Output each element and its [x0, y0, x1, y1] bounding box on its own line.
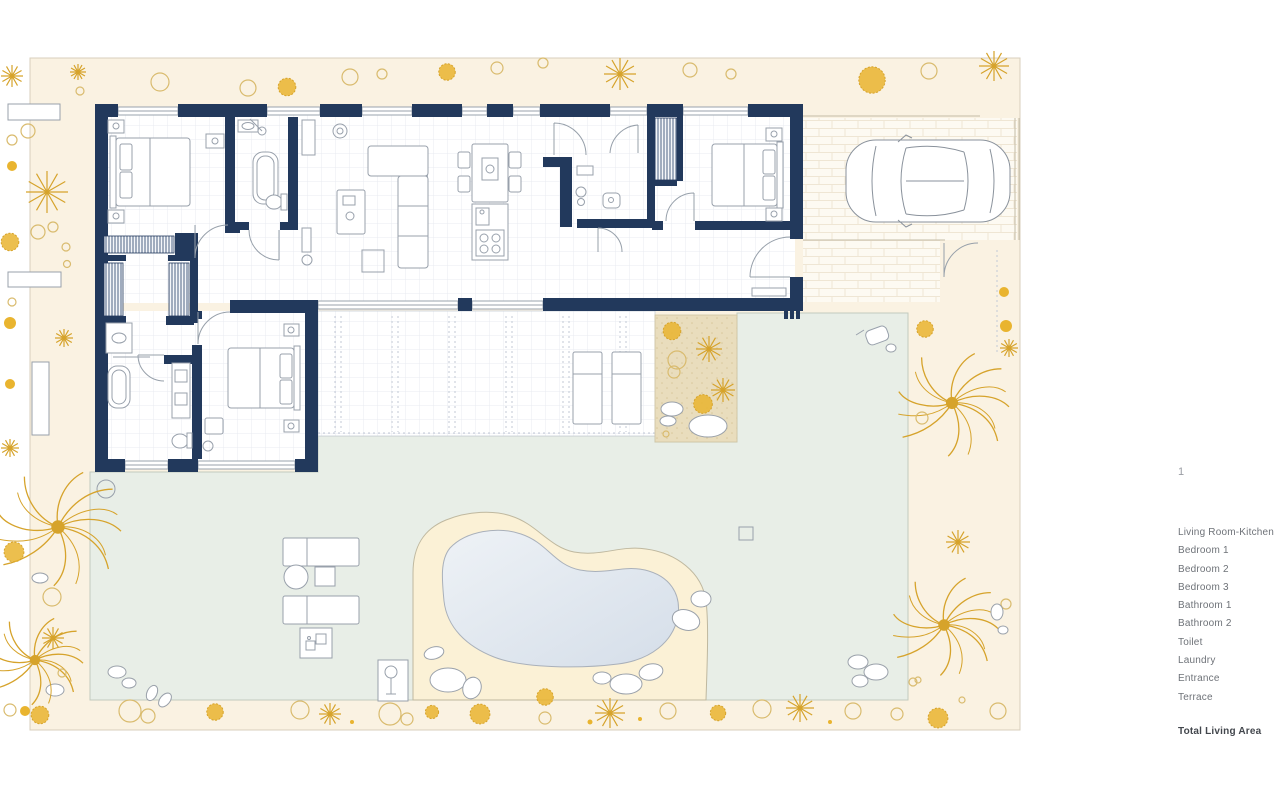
floor-plan-page: 1 Living Room-KitchenBedroom 1Bedroom 2B… [0, 0, 1280, 800]
legend-total-label: Total Living Area [1178, 726, 1280, 737]
legend-item: Toilet [1178, 634, 1280, 652]
legend-item: Entrance [1178, 670, 1280, 688]
laundry-stack [655, 118, 677, 180]
entrance-furniture [752, 288, 786, 296]
sand-patch [655, 315, 737, 442]
pergola-terrace [318, 311, 655, 436]
legend-items: Living Room-KitchenBedroom 1Bedroom 2Bed… [1178, 524, 1280, 707]
car [846, 135, 1010, 227]
legend-item: Bedroom 2 [1178, 561, 1280, 579]
legend-item: Bedroom 3 [1178, 579, 1280, 597]
legend-item: Terrace [1178, 689, 1280, 707]
legend-item: Bedroom 1 [1178, 542, 1280, 560]
legend-item: Living Room-Kitchen [1178, 524, 1280, 542]
sofa [368, 146, 428, 176]
kitchen-island [472, 204, 508, 260]
legend-item: Laundry [1178, 652, 1280, 670]
legend-mark: 1 [1178, 466, 1280, 478]
legend: 1 Living Room-KitchenBedroom 1Bedroom 2B… [1178, 466, 1280, 737]
site-plan [0, 0, 1280, 800]
pool-shower [378, 660, 408, 701]
legend-item: Bathroom 1 [1178, 597, 1280, 615]
legend-item: Bathroom 2 [1178, 615, 1280, 633]
